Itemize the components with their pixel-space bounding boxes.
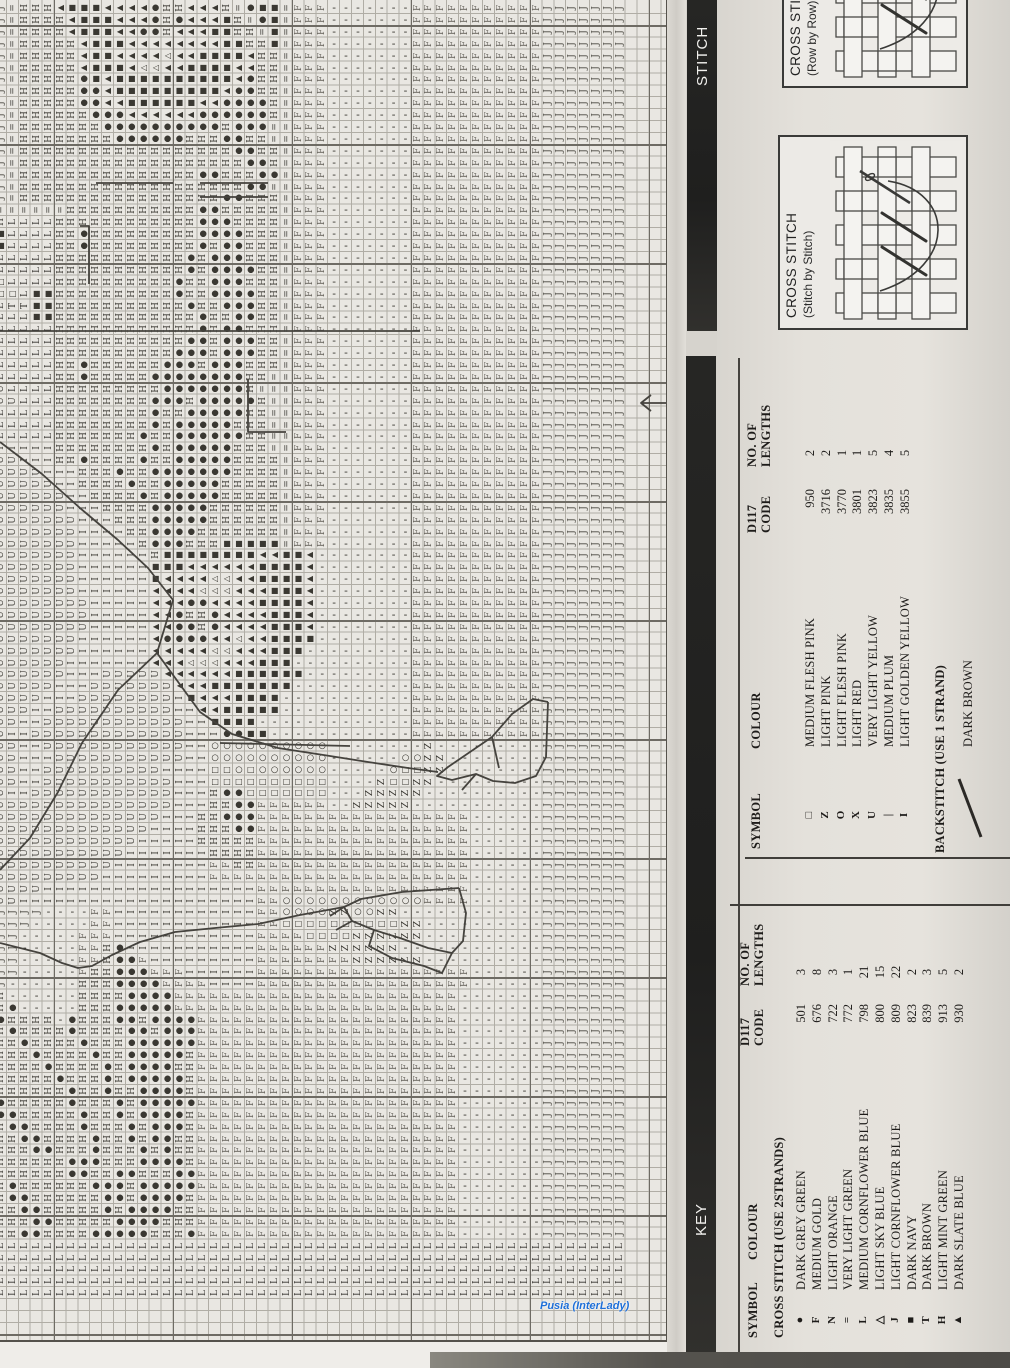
stitch-chart-grid: J=HHH▲■■■▲▲▲▲●HH▲▲▲H=●■■=FFF-------FFFFF… (0, 0, 686, 1352)
scanned-cross-stitch-pattern-page: J=HHH▲■■■▲▲▲▲●HH▲▲▲H=●■■=FFF-------FFFFF… (0, 0, 1010, 1368)
